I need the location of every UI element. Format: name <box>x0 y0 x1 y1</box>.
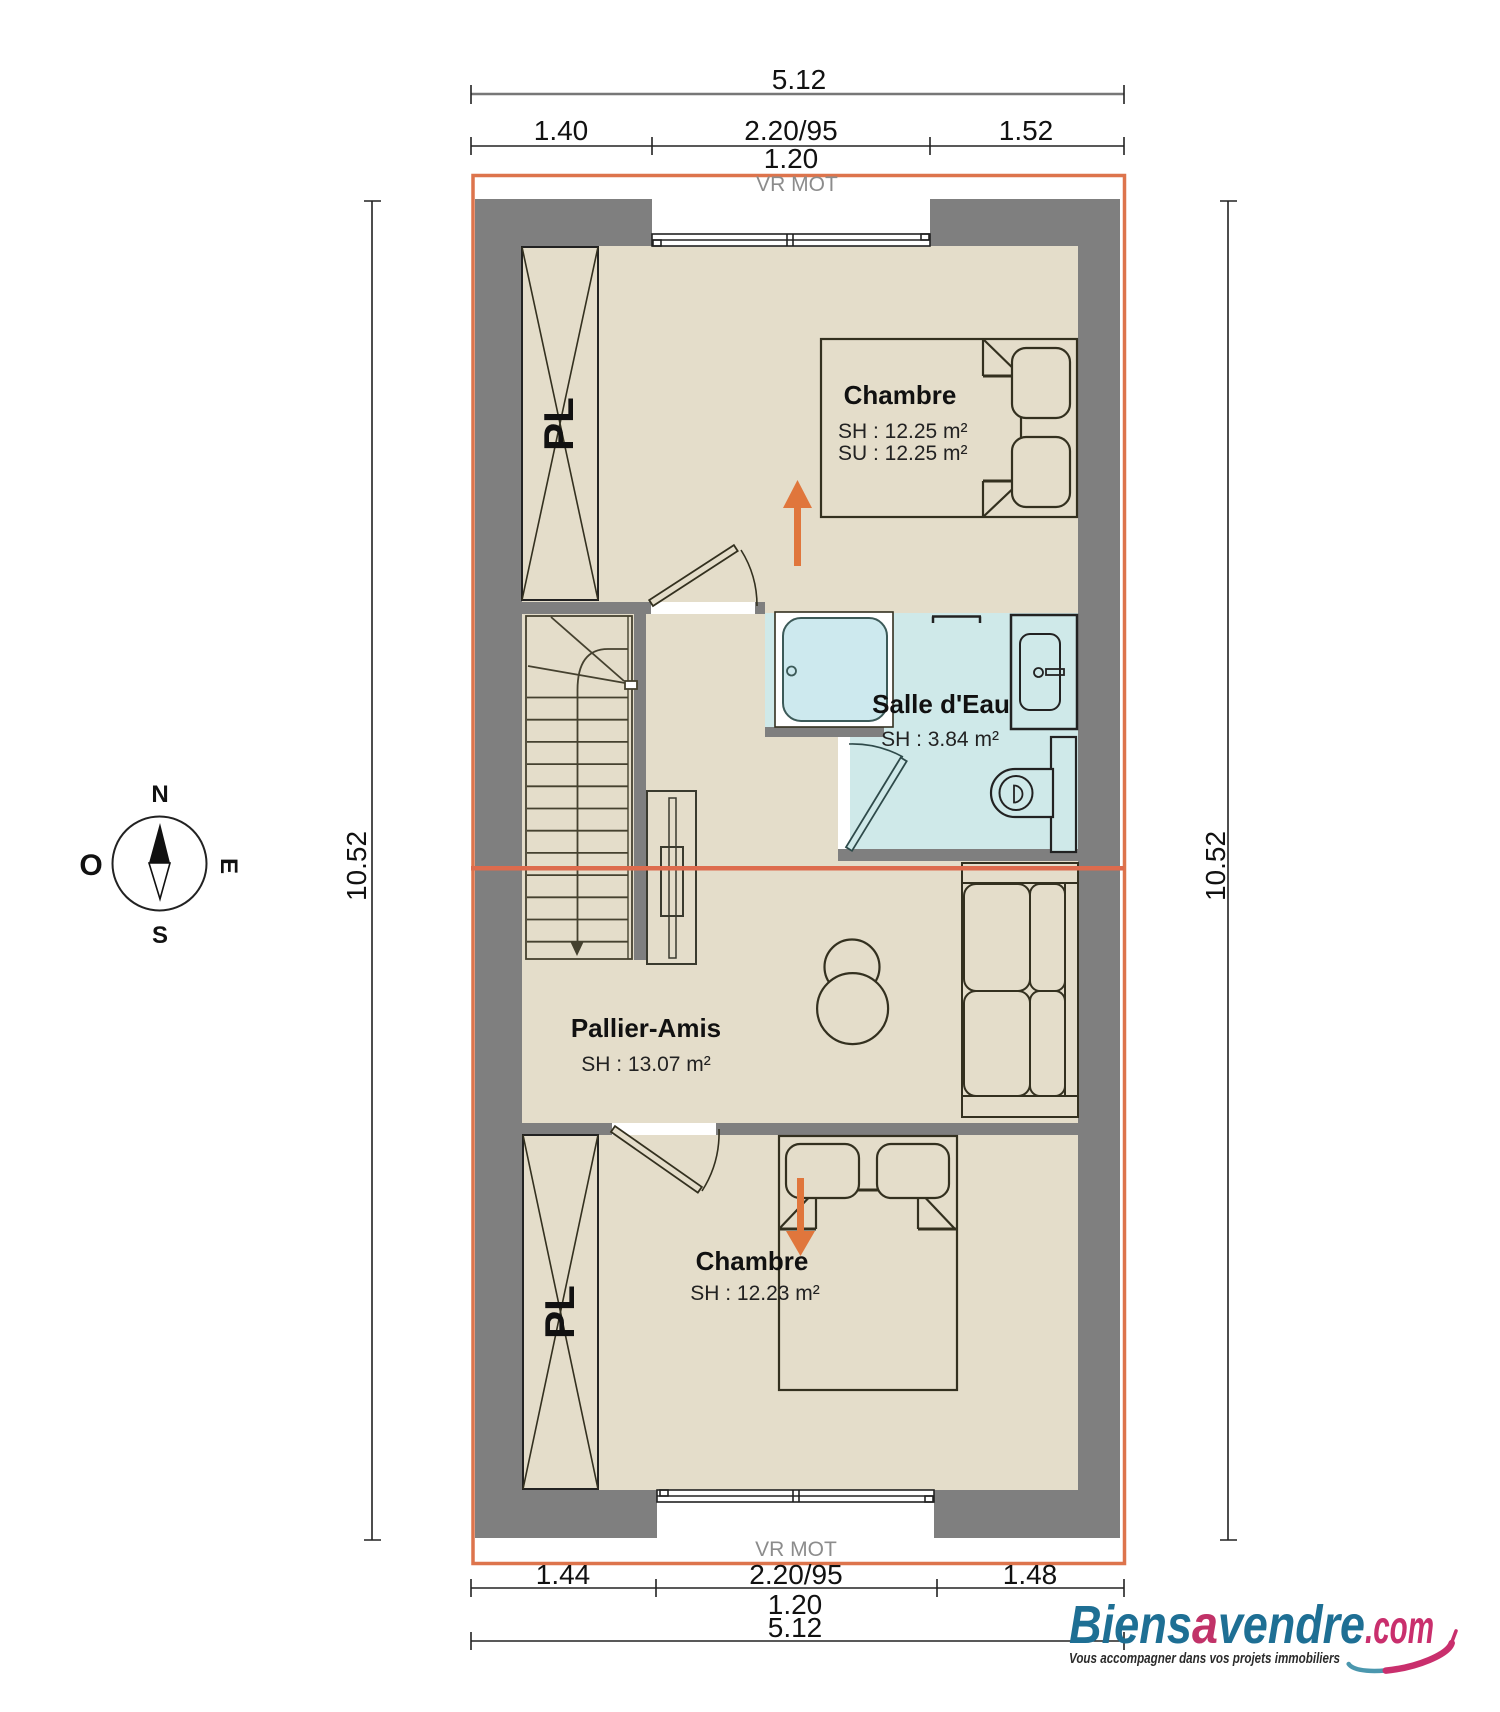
svg-text:SH : 3.84 m²: SH : 3.84 m² <box>881 728 999 751</box>
svg-text:Vous accompagner dans vos proj: Vous accompagner dans vos projets immobi… <box>1069 1650 1340 1667</box>
svg-text:1.44: 1.44 <box>536 1559 591 1590</box>
svg-text:1.20: 1.20 <box>764 143 819 174</box>
svg-text:SH : 12.25 m²: SH : 12.25 m² <box>838 420 968 443</box>
svg-text:N: N <box>151 781 168 808</box>
svg-text:1.48: 1.48 <box>1003 1559 1058 1590</box>
svg-text:2.20/95: 2.20/95 <box>749 1559 842 1590</box>
svg-text:SH : 12.23 m²: SH : 12.23 m² <box>690 1282 820 1305</box>
svg-text:Chambre: Chambre <box>696 1246 809 1276</box>
svg-text:10.52: 10.52 <box>1200 831 1231 901</box>
svg-text:Salle d'Eau: Salle d'Eau <box>872 689 1010 719</box>
svg-text:PL: PL <box>535 397 582 451</box>
svg-text:.com: .com <box>1365 1601 1434 1653</box>
svg-text:5.12: 5.12 <box>768 1612 823 1643</box>
svg-text:E: E <box>215 858 242 874</box>
svg-text:2.20/95: 2.20/95 <box>744 115 837 146</box>
svg-text:VR MOT: VR MOT <box>756 173 838 196</box>
svg-text:10.52: 10.52 <box>341 831 372 901</box>
svg-text:SH : 13.07 m²: SH : 13.07 m² <box>581 1053 711 1076</box>
svg-text:1.40: 1.40 <box>534 115 589 146</box>
svg-text:1.52: 1.52 <box>999 115 1054 146</box>
svg-text:O: O <box>79 849 102 882</box>
svg-text:Chambre: Chambre <box>844 380 957 410</box>
svg-text:vendre: vendre <box>1218 1595 1365 1655</box>
svg-text:PL: PL <box>536 1285 583 1339</box>
svg-text:VR MOT: VR MOT <box>755 1538 837 1561</box>
svg-text:a: a <box>1192 1595 1218 1655</box>
svg-text:Biens: Biens <box>1069 1595 1192 1655</box>
svg-text:Pallier-Amis: Pallier-Amis <box>571 1013 721 1043</box>
svg-text:S: S <box>152 922 168 949</box>
svg-text:5.12: 5.12 <box>772 64 827 95</box>
svg-text:SU : 12.25 m²: SU : 12.25 m² <box>838 442 968 465</box>
